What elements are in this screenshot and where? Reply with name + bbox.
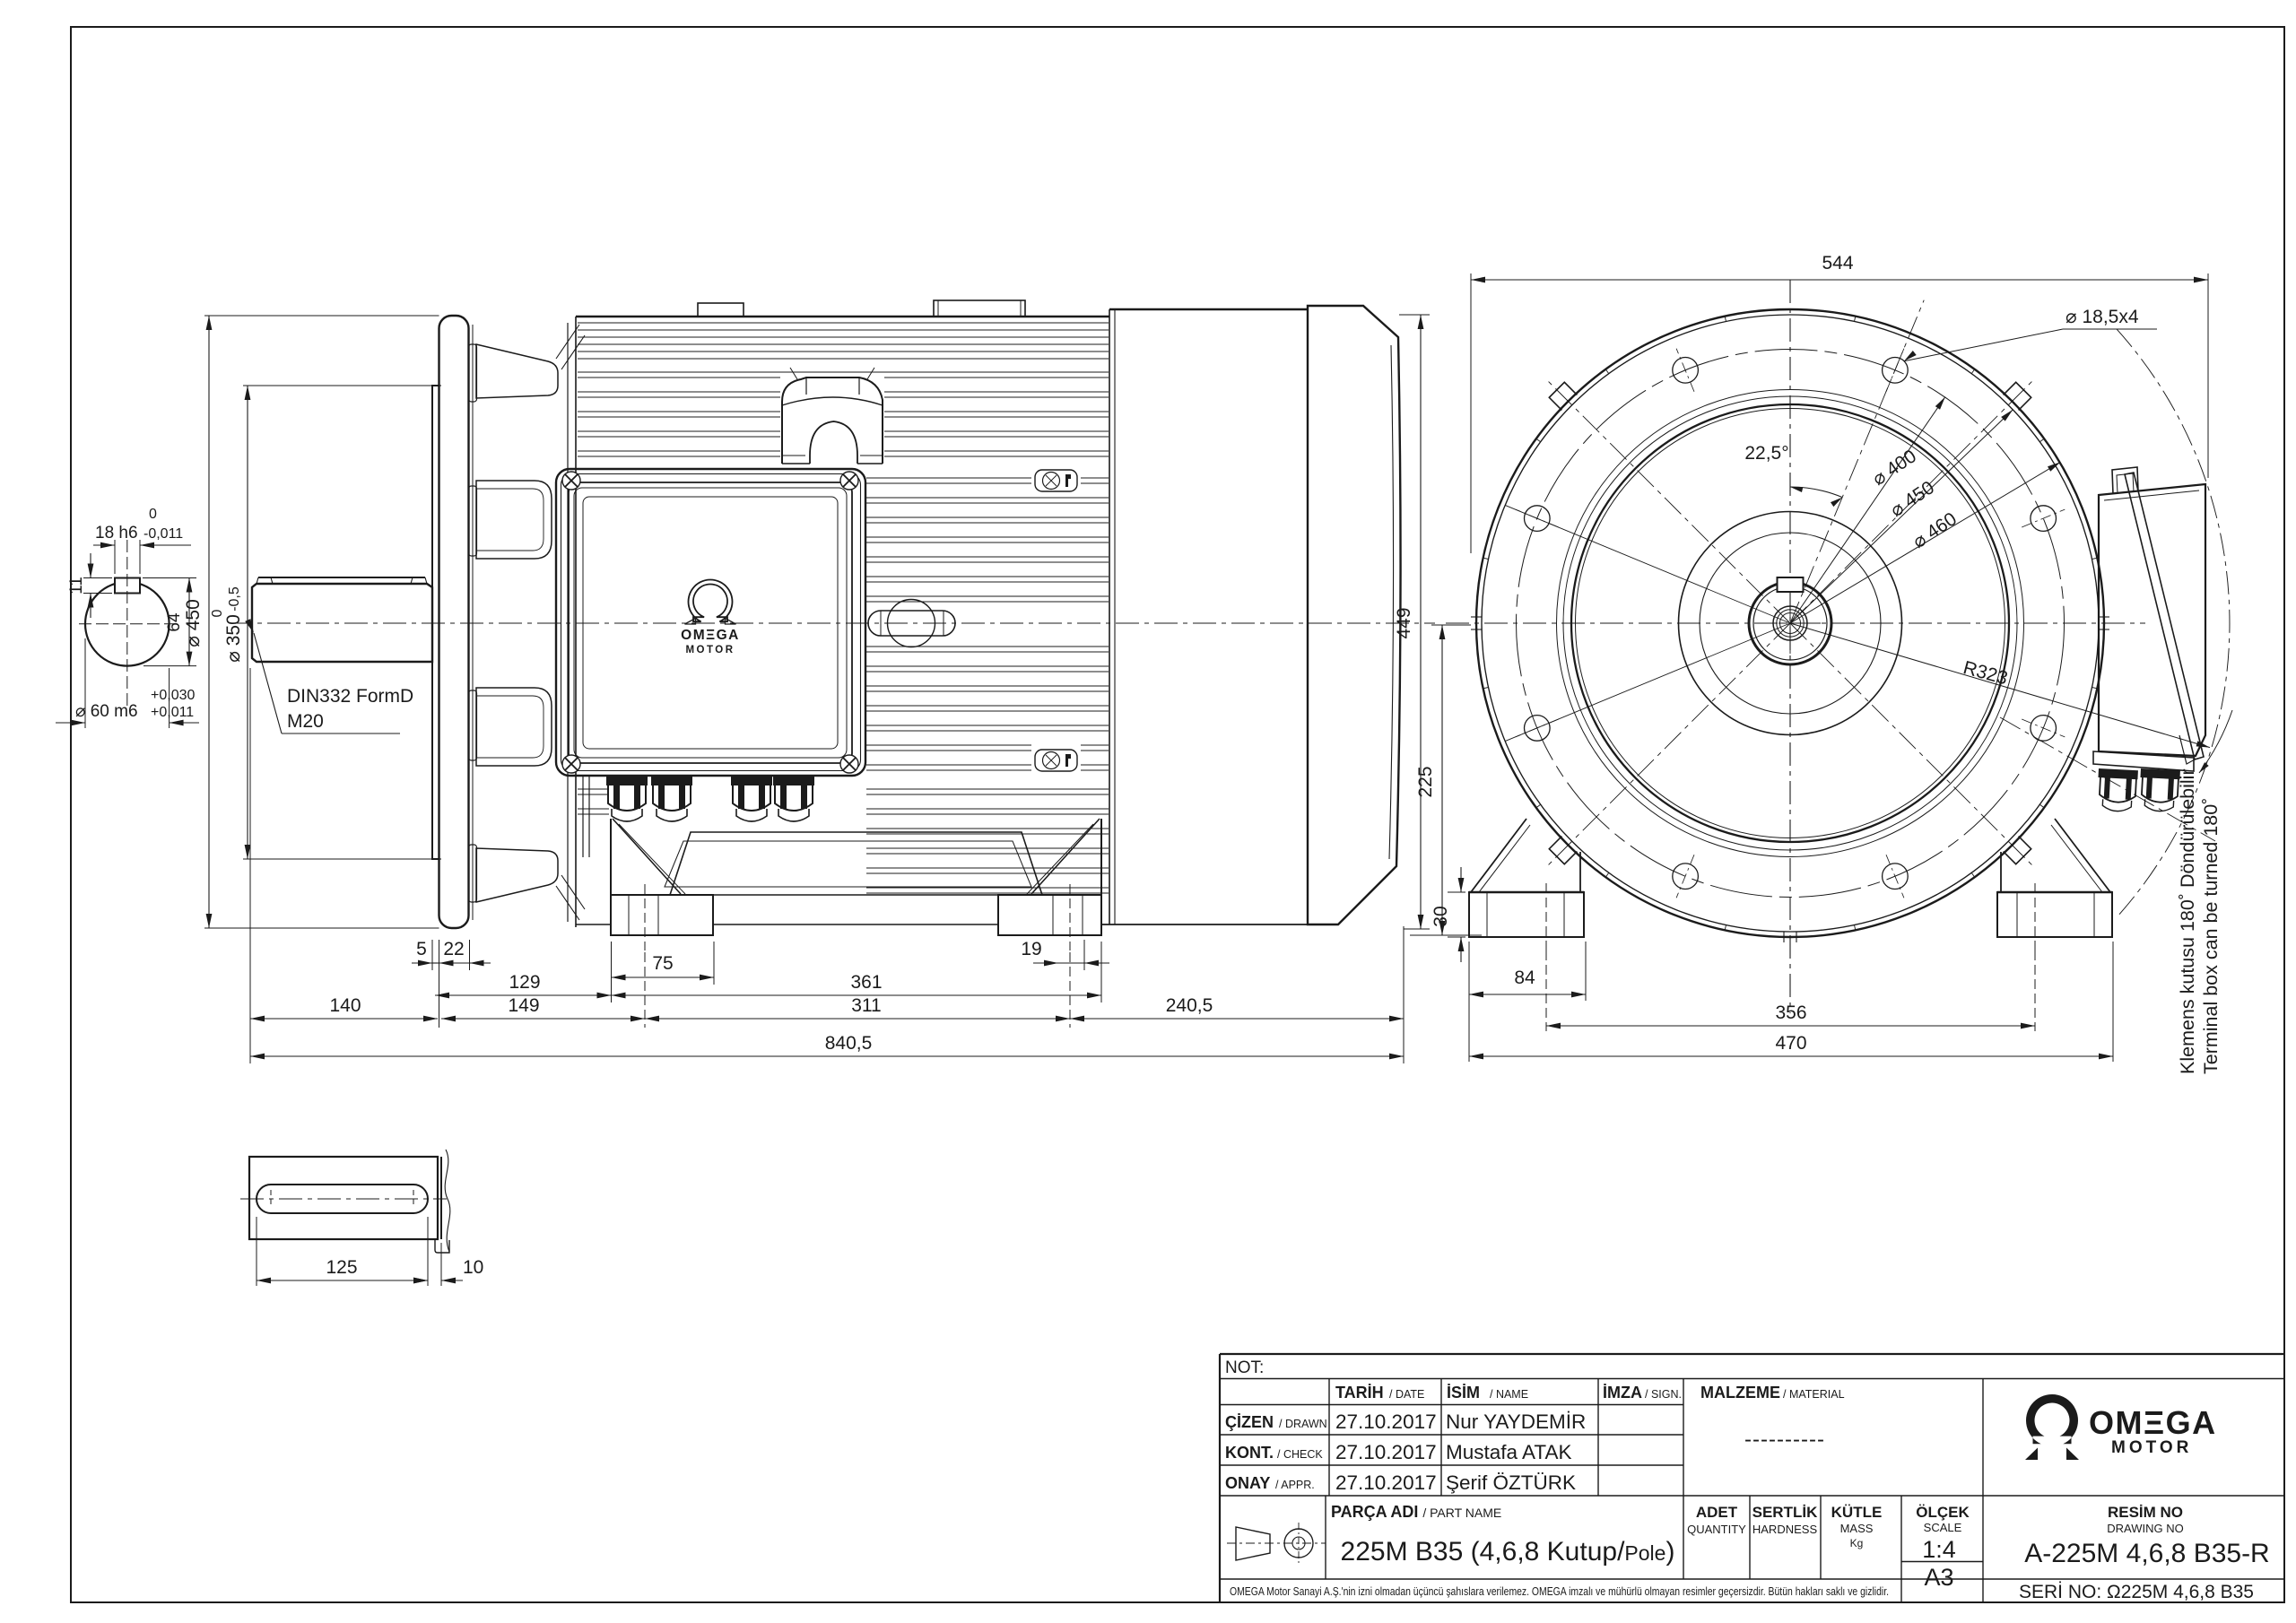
svg-text:KÜTLE: KÜTLE: [1831, 1504, 1883, 1521]
svg-text:/ SIGN.: / SIGN.: [1645, 1388, 1682, 1401]
svg-text:225: 225: [1415, 766, 1436, 797]
svg-text:840,5: 840,5: [825, 1033, 873, 1054]
svg-text:27.10.2017: 27.10.2017: [1335, 1441, 1437, 1463]
svg-text:11: 11: [67, 577, 86, 595]
svg-text:22,5°: 22,5°: [1744, 443, 1788, 464]
svg-text:A3: A3: [1924, 1564, 1953, 1591]
svg-text:64: 64: [165, 612, 184, 632]
svg-text:ÖLÇEK: ÖLÇEK: [1916, 1504, 1970, 1521]
svg-text:75: 75: [652, 953, 673, 974]
svg-text:DRAWING NO: DRAWING NO: [2107, 1522, 2183, 1535]
svg-text:MALZEME: MALZEME: [1700, 1384, 1780, 1402]
svg-text:+0,011: +0,011: [151, 705, 194, 720]
svg-text:311: 311: [851, 995, 881, 1016]
svg-text:/ APPR.: / APPR.: [1275, 1479, 1315, 1491]
svg-text:SERTLİK: SERTLİK: [1752, 1504, 1818, 1521]
svg-text:⌀ 350: ⌀ 350: [223, 614, 244, 663]
svg-text:/ DRAWN: / DRAWN: [1279, 1418, 1327, 1430]
svg-text:ADET: ADET: [1696, 1504, 1738, 1521]
svg-text:⌀ 60 m6: ⌀ 60 m6: [75, 702, 138, 721]
svg-text:İMZA: İMZA: [1603, 1384, 1642, 1402]
svg-text:MASS: MASS: [1840, 1522, 1874, 1535]
svg-text:0: 0: [149, 507, 157, 522]
svg-text:DIN332 FormD: DIN332 FormD: [287, 686, 413, 707]
svg-text:470: 470: [1775, 1033, 1806, 1054]
svg-text:240,5: 240,5: [1166, 995, 1213, 1016]
svg-text:M20: M20: [287, 711, 324, 732]
svg-text:RESİM NO: RESİM NO: [2108, 1504, 2183, 1521]
svg-text:27.10.2017: 27.10.2017: [1335, 1410, 1437, 1433]
svg-text:NOT:: NOT:: [1225, 1358, 1264, 1377]
svg-text:129: 129: [509, 972, 540, 993]
svg-text:SERİ NO: Ω225M 4,6,8 B35: SERİ NO: Ω225M 4,6,8 B35: [2019, 1582, 2254, 1602]
svg-text:+0,030: +0,030: [151, 688, 195, 703]
svg-text:OMΞGA: OMΞGA: [681, 628, 740, 643]
svg-text:27.10.2017: 27.10.2017: [1335, 1471, 1437, 1494]
svg-text:Mustafa ATAK: Mustafa ATAK: [1446, 1441, 1571, 1463]
svg-text:/ DATE: / DATE: [1389, 1388, 1424, 1401]
svg-text:356: 356: [1775, 1002, 1806, 1023]
svg-text:/ NAME: / NAME: [1490, 1388, 1528, 1401]
svg-text:5: 5: [416, 939, 427, 959]
svg-text:MOTOR: MOTOR: [685, 645, 735, 655]
svg-text:361: 361: [850, 972, 882, 993]
svg-text:22: 22: [443, 939, 464, 959]
svg-text:ONAY: ONAY: [1225, 1474, 1270, 1492]
svg-text:----------: ----------: [1744, 1428, 1825, 1452]
svg-text:QUANTITY: QUANTITY: [1687, 1523, 1746, 1536]
svg-text:125: 125: [326, 1257, 357, 1278]
svg-text:Terminal box can be turned 180: Terminal box can be turned 180˚: [2200, 798, 2222, 1074]
svg-text:149: 149: [508, 995, 539, 1016]
svg-text:Klemens kutusu 180˚ Döndürüleb: Klemens kutusu 180˚ Döndürülebilir: [2177, 768, 2198, 1074]
svg-text:⌀ 18,5x4: ⌀ 18,5x4: [2066, 307, 2139, 327]
svg-text:OMEGA Motor Sanayi A.Ş.'nin iz: OMEGA Motor Sanayi A.Ş.'nin izni olmadan…: [1230, 1585, 1889, 1598]
svg-text:KONT.: KONT.: [1225, 1444, 1274, 1462]
svg-text:84: 84: [1514, 968, 1535, 988]
svg-text:10: 10: [463, 1257, 483, 1278]
svg-text:İSİM: İSİM: [1447, 1384, 1480, 1402]
svg-text:Kg: Kg: [1850, 1537, 1864, 1549]
svg-text:HARDNESS: HARDNESS: [1752, 1523, 1818, 1536]
svg-text:225M B35 (4,6,8 Kutup/Pole): 225M B35 (4,6,8 Kutup/Pole): [1341, 1537, 1675, 1567]
svg-text:544: 544: [1822, 253, 1853, 273]
svg-text:SCALE: SCALE: [1924, 1521, 1962, 1534]
svg-text:-0,5: -0,5: [227, 586, 242, 612]
svg-text:449: 449: [1394, 607, 1414, 638]
svg-text:18 h6: 18 h6: [95, 524, 138, 542]
svg-text:1:4: 1:4: [1922, 1536, 1956, 1563]
svg-text:TARİH: TARİH: [1335, 1384, 1384, 1402]
svg-text:/ MATERIAL: / MATERIAL: [1783, 1388, 1845, 1401]
svg-text:Şerif ÖZTÜRK: Şerif ÖZTÜRK: [1446, 1471, 1576, 1494]
svg-text:MOTOR: MOTOR: [2111, 1438, 2192, 1457]
svg-text:OMΞGA: OMΞGA: [2089, 1404, 2217, 1441]
svg-text:/ CHECK: / CHECK: [1277, 1448, 1323, 1461]
svg-text:140: 140: [329, 995, 361, 1016]
svg-text:0: 0: [210, 609, 225, 617]
svg-text:PARÇA ADI / PART NAME: PARÇA ADI / PART NAME: [1331, 1503, 1501, 1521]
svg-text:ÇİZEN: ÇİZEN: [1225, 1413, 1274, 1431]
svg-text:A-225M 4,6,8 B35-R: A-225M 4,6,8 B35-R: [2024, 1539, 2269, 1568]
svg-text:⌀ 450: ⌀ 450: [183, 599, 204, 647]
svg-text:19: 19: [1021, 939, 1041, 959]
svg-text:-0,011: -0,011: [143, 526, 183, 542]
svg-text:Nur YAYDEMİR: Nur YAYDEMİR: [1446, 1410, 1586, 1433]
